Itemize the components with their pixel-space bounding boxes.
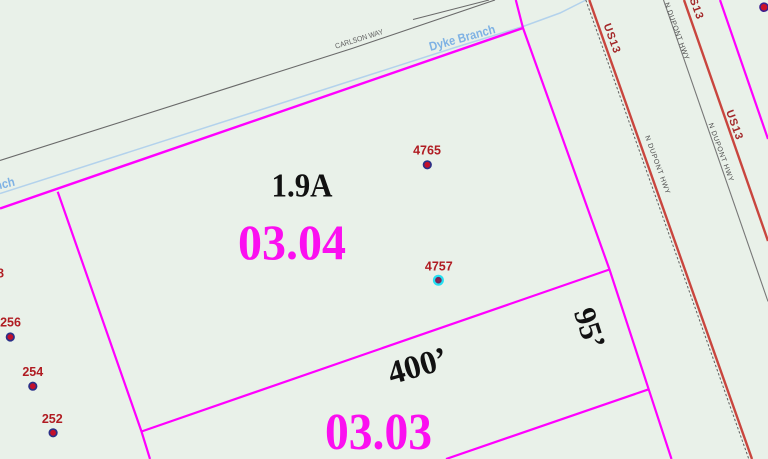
svg-text:254: 254 — [22, 365, 43, 379]
svg-text:8: 8 — [0, 267, 4, 281]
svg-text:256: 256 — [0, 316, 21, 330]
svg-text:1.9A: 1.9A — [272, 167, 333, 204]
svg-text:03.03: 03.03 — [325, 404, 432, 459]
svg-text:4757: 4757 — [425, 260, 453, 274]
svg-text:03.04: 03.04 — [238, 214, 346, 270]
svg-text:252: 252 — [42, 412, 63, 426]
svg-text:4765: 4765 — [413, 144, 441, 158]
